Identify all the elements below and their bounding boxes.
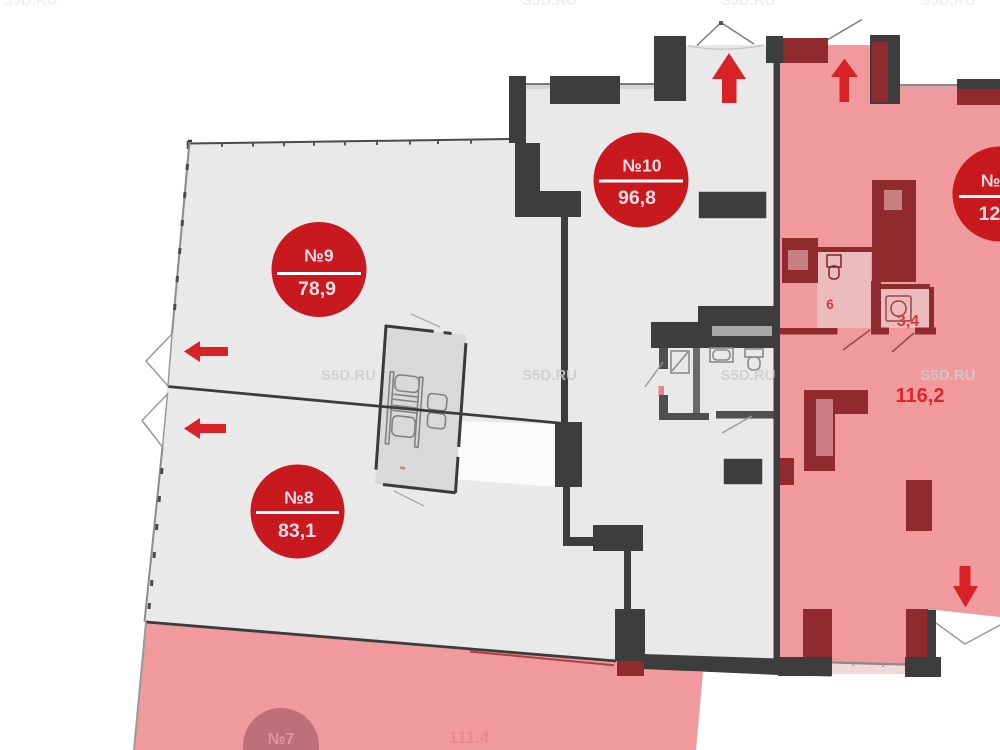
svg-text:№10: №10 [623, 156, 662, 176]
svg-text:S5D.RU: S5D.RU [720, 0, 775, 9]
svg-text:S5D.RU: S5D.RU [720, 367, 775, 384]
svg-text:№9: №9 [304, 246, 334, 266]
svg-text:3,4: 3,4 [897, 313, 919, 330]
svg-text:№7: №7 [268, 731, 295, 748]
svg-text:№8: №8 [284, 488, 314, 508]
svg-text:78,9: 78,9 [298, 278, 336, 300]
svg-text:96,8: 96,8 [618, 187, 656, 209]
svg-text:S5D.RU: S5D.RU [522, 367, 577, 384]
svg-text:S5D.RU: S5D.RU [522, 0, 577, 9]
svg-text:S5D.RU: S5D.RU [920, 367, 975, 384]
svg-text:S5D.RU: S5D.RU [2, 0, 57, 9]
svg-text:111,4: 111,4 [449, 728, 490, 747]
svg-text:116,2: 116,2 [896, 385, 945, 407]
svg-text:S5D.RU: S5D.RU [920, 0, 975, 9]
svg-text:№11: №11 [981, 171, 1000, 191]
svg-text:125,8: 125,8 [979, 203, 1000, 225]
svg-text:S5D.RU: S5D.RU [321, 367, 376, 384]
svg-text:6: 6 [826, 297, 834, 312]
svg-text:83,1: 83,1 [278, 520, 316, 542]
